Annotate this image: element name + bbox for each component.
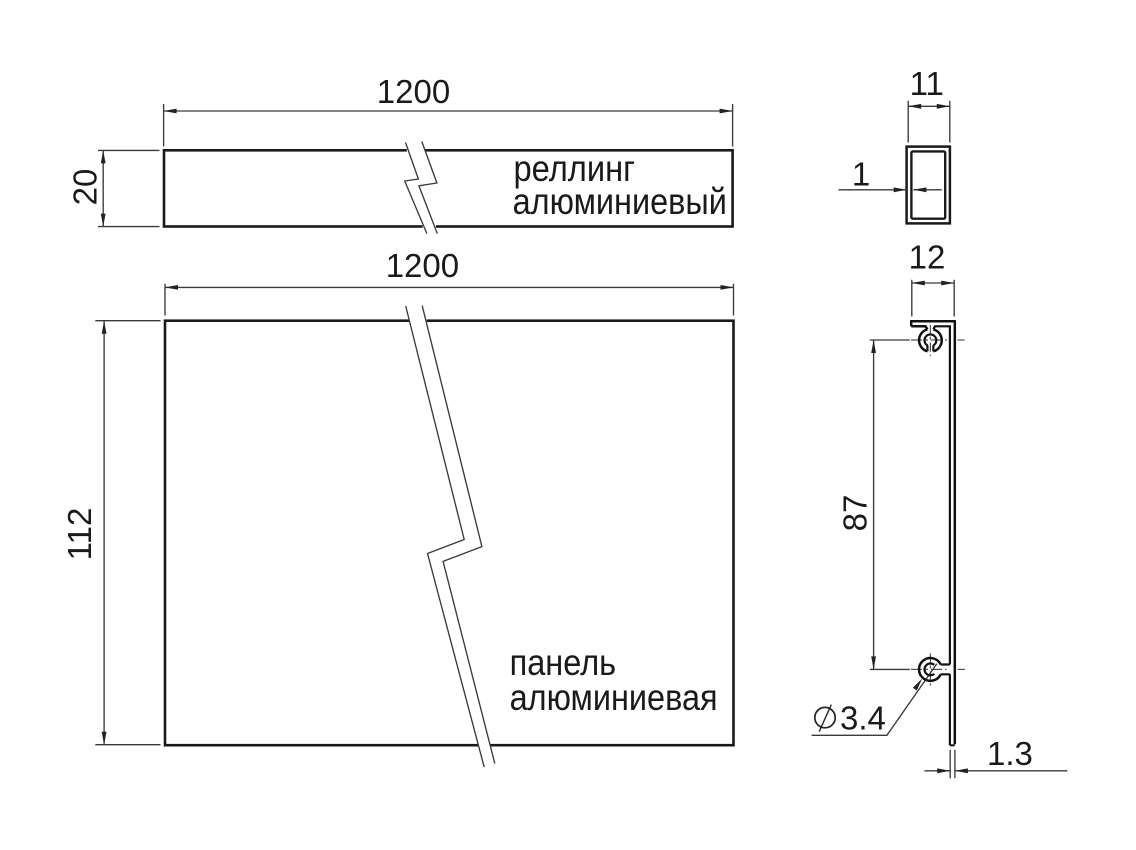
svg-text:11: 11 xyxy=(910,65,944,102)
svg-text:алюминиевый: алюминиевый xyxy=(513,181,727,222)
svg-text:12: 12 xyxy=(909,239,946,276)
svg-text:112: 112 xyxy=(61,508,98,561)
svg-text:3.4: 3.4 xyxy=(840,700,886,737)
svg-text:87: 87 xyxy=(837,495,874,532)
svg-text:алюминиевая: алюминиевая xyxy=(510,677,718,718)
svg-text:20: 20 xyxy=(66,169,103,206)
svg-text:1.3: 1.3 xyxy=(987,735,1033,772)
svg-text:1200: 1200 xyxy=(377,73,450,110)
svg-text:1: 1 xyxy=(852,155,870,192)
svg-text:1200: 1200 xyxy=(386,247,459,284)
